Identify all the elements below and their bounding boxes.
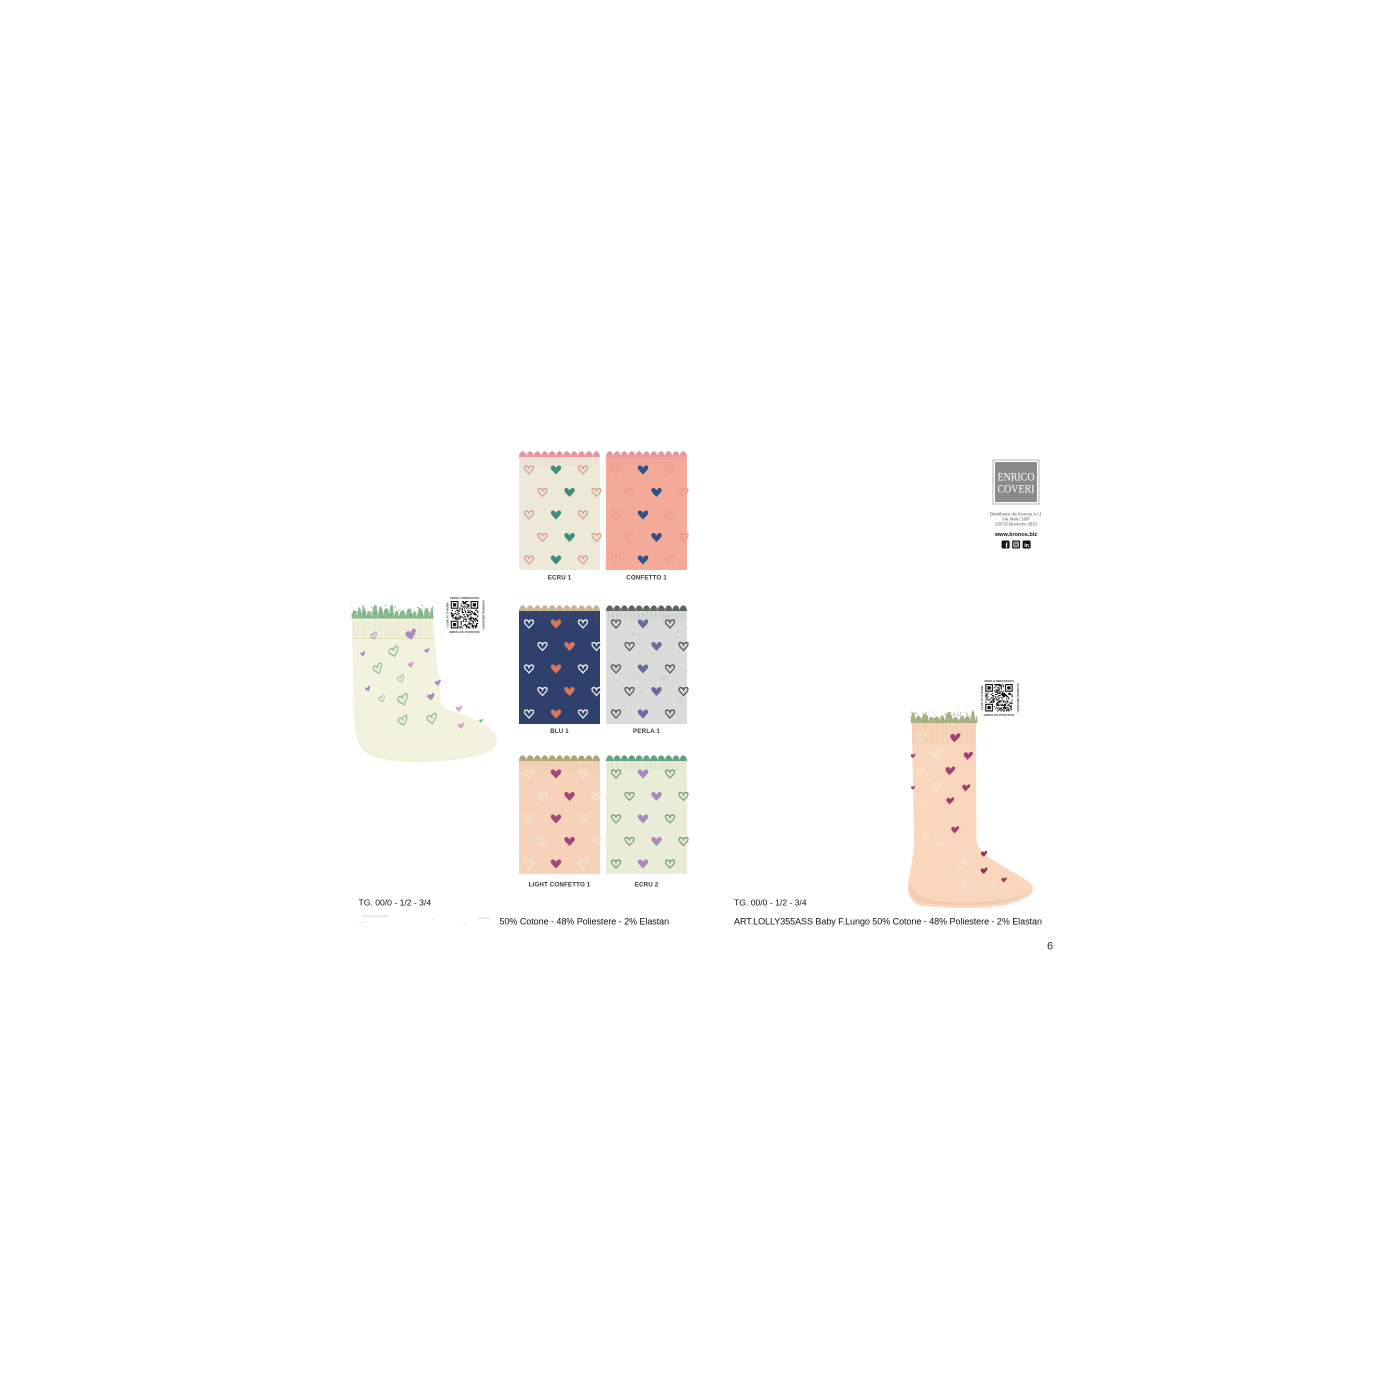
svg-text:25073 Bovezzo (BS): 25073 Bovezzo (BS) (995, 522, 1038, 527)
svg-text:GUARDALI INDOSSATI: GUARDALI INDOSSATI (481, 600, 485, 630)
svg-text:. –: . – (356, 918, 365, 927)
svg-text:¡MIRALOS PUESTOS!: ¡MIRALOS PUESTOS! (449, 630, 480, 634)
svg-text:PERLA 1: PERLA 1 (633, 728, 660, 735)
svg-text:COVERI: COVERI (998, 484, 1035, 496)
svg-text:TG. 00/0 - 1/2 - 3/4: TG. 00/0 - 1/2 - 3/4 (359, 898, 432, 908)
svg-text:CONFETTO 1: CONFETTO 1 (626, 575, 667, 582)
svg-text:ENRICO: ENRICO (998, 472, 1035, 484)
svg-text:6: 6 (1047, 941, 1053, 953)
svg-text:VEDILO INDOSSATO: VEDILO INDOSSATO (450, 596, 480, 600)
svg-text:TG. 00/0 - 1/2 - 3/4: TG. 00/0 - 1/2 - 3/4 (734, 898, 807, 908)
svg-text:LOOK AT IT WORN: LOOK AT IT WORN (445, 603, 449, 627)
svg-text:LOOK AT IT WORN: LOOK AT IT WORN (980, 686, 984, 710)
svg-text:ECRU 2: ECRU 2 (635, 882, 659, 889)
svg-text:ECRU 1: ECRU 1 (548, 575, 572, 582)
svg-text:BLU 1: BLU 1 (550, 728, 569, 735)
svg-text:GUARDALI INDOSSATI: GUARDALI INDOSSATI (1016, 683, 1020, 713)
svg-text:www.kronos.biz: www.kronos.biz (994, 532, 1038, 538)
svg-text:50% Cotone - 48% Poliestere -: 50% Cotone - 48% Poliestere - 2% Elastan (500, 917, 670, 927)
svg-text:LIGHT CONFETTO 1: LIGHT CONFETTO 1 (529, 882, 591, 889)
svg-text:in: in (1024, 543, 1029, 549)
svg-text:ART.LOLLY355ASS Baby F.Lungo 5: ART.LOLLY355ASS Baby F.Lungo 50% Cotone … (734, 917, 1042, 927)
svg-text:¡MIRALOS PUESTOS!: ¡MIRALOS PUESTOS! (984, 713, 1015, 717)
svg-text:VEDILO INDOSSATO: VEDILO INDOSSATO (984, 679, 1014, 683)
